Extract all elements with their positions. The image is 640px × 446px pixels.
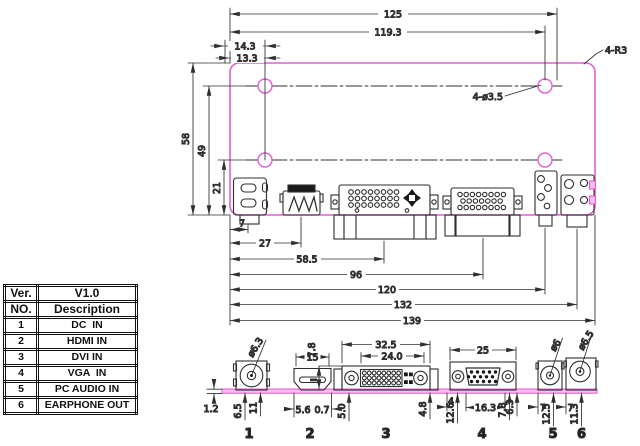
top-view: 125 119.3 14.3 13.3 4-R3 4-ø3.5 58 49 21 xyxy=(181,8,627,327)
dim-7: 7 xyxy=(239,219,245,230)
dim-27: 27 xyxy=(259,239,271,250)
dim-13-3: 13.3 xyxy=(236,54,257,65)
dim-49: 49 xyxy=(197,145,208,157)
dim-139: 139 xyxy=(403,316,421,327)
dvi-pins xyxy=(349,190,399,208)
row-no: 4 xyxy=(5,366,38,382)
dim-58: 58 xyxy=(181,133,192,145)
row-no: 2 xyxy=(5,334,38,350)
dim-132: 132 xyxy=(394,300,412,311)
dim-21: 21 xyxy=(212,182,223,194)
row-no: 6 xyxy=(5,398,38,414)
vga-front xyxy=(450,362,516,390)
dim-119-3: 119.3 xyxy=(374,28,401,39)
row-no: 5 xyxy=(5,382,38,398)
vga-pins xyxy=(458,192,506,209)
ver-label: Ver. xyxy=(5,286,38,302)
dim-earphone-11-3: 11.3 xyxy=(570,403,581,424)
dim-dvi-width: 32.5 xyxy=(375,340,396,351)
row-desc: DC IN xyxy=(38,318,137,334)
audio-jack-top xyxy=(535,171,557,226)
connector-number-6: 6 xyxy=(577,427,586,442)
dim-earphone-diameter: ø6.5 xyxy=(576,329,596,353)
dim-14-3: 14.3 xyxy=(234,42,255,53)
hole-diameter-note: 4-ø3.5 xyxy=(473,92,503,103)
dim-96: 96 xyxy=(350,270,362,281)
row-desc: HDMI IN xyxy=(38,334,137,350)
front-view: 1.2 ø6.3 6.5 11 15 xyxy=(203,329,598,442)
ver-value: V1.0 xyxy=(38,286,137,302)
dim-120: 120 xyxy=(378,285,396,296)
dvi-front xyxy=(334,366,438,390)
row-no: 3 xyxy=(5,350,38,366)
dim-dvi-5-0: 5.0 xyxy=(337,403,348,418)
dim-dvi-height: 7.8 xyxy=(307,342,318,357)
dim-125: 125 xyxy=(384,10,402,21)
connector-number-2: 2 xyxy=(305,427,314,442)
dim-hdmi-0-7: 0.7 xyxy=(314,405,329,416)
dim-dvi-pin-width: 24.0 xyxy=(381,352,402,363)
connector-number-4: 4 xyxy=(477,427,486,442)
row-desc: DVI IN xyxy=(38,350,137,366)
dim-hdmi-5-6: 5.6 xyxy=(295,405,310,416)
dvi-cross-icon xyxy=(403,189,421,207)
row-no: 1 xyxy=(5,318,38,334)
mounting-hole xyxy=(538,79,552,93)
dvi-analog-cross-icon xyxy=(404,373,413,385)
dim-audio-diameter: ø6 xyxy=(548,338,564,354)
row-desc: EARPHONE OUT xyxy=(38,398,137,414)
hdmi-front xyxy=(294,369,331,391)
dc-jack-top xyxy=(234,178,268,224)
no-header: NO. xyxy=(5,302,38,318)
technical-drawing: Ver. V1.0 NO. Description 1 DC IN 2 HDMI… xyxy=(0,0,640,446)
earphone-jack-top xyxy=(561,175,596,227)
dim-58-5: 58.5 xyxy=(296,255,317,266)
dim-dc-6-5: 6.5 xyxy=(233,403,244,418)
row-desc: VGA IN xyxy=(38,366,137,382)
dvi-top xyxy=(331,185,438,239)
dim-audio-12-5: 12.5 xyxy=(542,403,553,424)
dim-dvi-4-8: 4.8 xyxy=(418,401,429,416)
vga-top xyxy=(443,188,522,236)
dim-vga-width: 25 xyxy=(477,346,489,357)
description-header: Description xyxy=(38,302,137,318)
connector-number-5: 5 xyxy=(548,427,557,442)
dim-dc-11: 11 xyxy=(249,402,260,414)
dim-vga-6-3: 6.3 xyxy=(505,399,516,414)
connector-number-1: 1 xyxy=(244,427,253,442)
revision-table: Ver. V1.0 NO. Description 1 DC IN 2 HDMI… xyxy=(3,284,138,415)
hdmi-top xyxy=(280,185,323,215)
row-desc: PC AUDIO IN xyxy=(38,382,137,398)
mounting-hole xyxy=(538,153,552,167)
dvi-front-pins xyxy=(362,371,400,385)
dim-pcb-thickness: 1.2 xyxy=(203,404,218,415)
dim-vga-12-6: 12.6 xyxy=(446,402,457,423)
connector-number-3: 3 xyxy=(381,427,390,442)
corner-radius-note: 4-R3 xyxy=(605,46,627,57)
vga-front-pins xyxy=(467,370,497,383)
dim-vga-16-3: 16.3 xyxy=(475,403,496,414)
